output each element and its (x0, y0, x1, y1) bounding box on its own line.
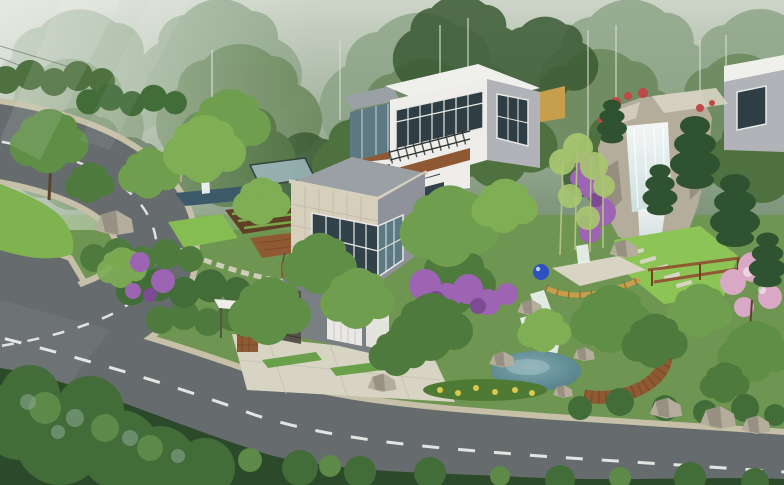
ornament-highlight (536, 267, 540, 271)
yellow-fence (540, 86, 565, 122)
purple-shrub-shadow (143, 288, 157, 302)
roadside-flowerbed (423, 379, 547, 401)
neighbor-villa (724, 55, 784, 152)
blue-ornament (533, 264, 549, 280)
villa-rendering (0, 0, 784, 485)
neighbor-window (737, 86, 766, 130)
rendering-viewport (0, 0, 784, 485)
terrace-cascade (576, 244, 590, 264)
